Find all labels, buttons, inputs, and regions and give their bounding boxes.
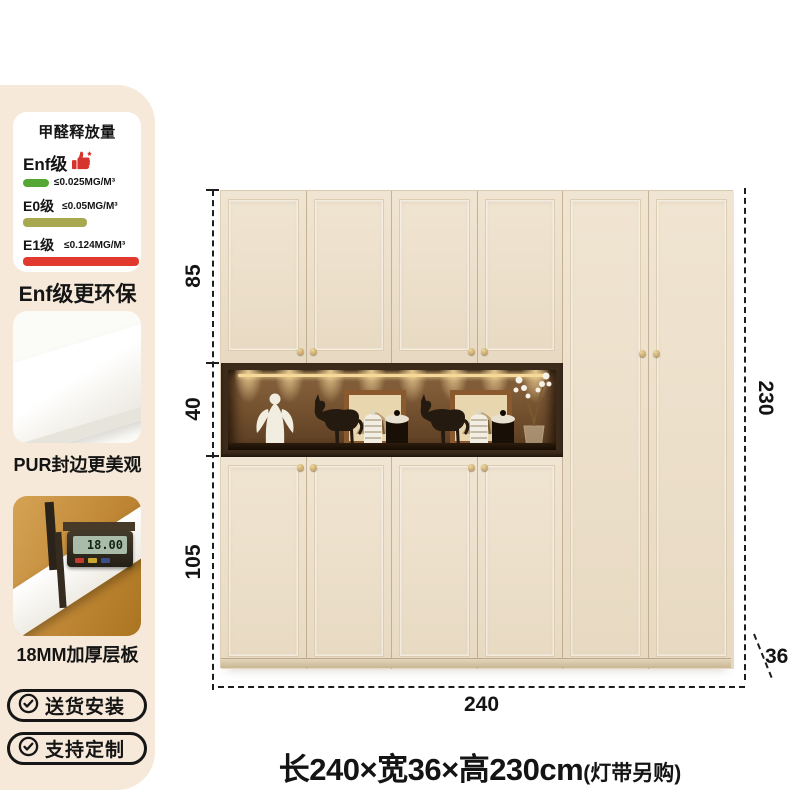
delivery-install-badge: 送货安装 [7, 689, 147, 722]
dim-tick [206, 362, 219, 364]
cabinet-door [221, 457, 307, 669]
eco-note: Enf级更环保 [0, 278, 155, 308]
door-knob [297, 348, 304, 355]
dim-label-upper-height: 85 [174, 256, 214, 296]
thick-shelf-label: 18MM加厚层板 [0, 641, 155, 667]
cabinet-door [478, 191, 563, 363]
dim-line-width [218, 686, 745, 688]
badge-label: 支持定制 [45, 735, 125, 762]
custom-support-badge: 支持定制 [7, 732, 147, 765]
grade-bar-line-e1 [23, 257, 131, 266]
door-knob [310, 348, 317, 355]
dim-tick [206, 189, 219, 191]
door-knob [481, 464, 488, 471]
dim-tick [206, 455, 219, 457]
caliper-rail [63, 522, 135, 531]
door-knob [297, 464, 304, 471]
grade-value-enf: ≤0.025MG/M³ [54, 177, 115, 188]
size-caption-note: (灯带另购) [583, 762, 681, 785]
grade-bar-e1 [23, 257, 139, 266]
display-niche [221, 363, 563, 457]
product-detail-page: 甲醛释放量 Enf级 ≤0.025MG/M³ E0级 ≤0.05MG/M³ [0, 0, 800, 800]
cabinet-tall-door [563, 191, 649, 669]
pur-edge-label: PUR封边更美观 [0, 451, 155, 477]
niche-decor-items [228, 370, 556, 450]
thumbs-up-star-icon [71, 151, 93, 171]
grade-bar-enf [23, 179, 49, 187]
door-knob [481, 348, 488, 355]
grade-row-e1: E1级 ≤0.124MG/M³ [23, 235, 131, 255]
board-corner-graphic [13, 318, 141, 443]
angel-statue [256, 394, 293, 447]
grade-bar-e0 [23, 218, 87, 227]
niche-shelf [228, 443, 556, 450]
caliper-image: 18.00 [13, 496, 141, 636]
door-knob [653, 350, 660, 357]
check-circle-icon [18, 693, 39, 719]
grade-label-e1: E1级 [23, 235, 54, 255]
caliper-lcd: 18.00 [73, 536, 127, 554]
cabinet-door [221, 191, 307, 363]
cabinet-tall-door [649, 191, 734, 669]
grade-value-e0: ≤0.05MG/M³ [62, 201, 118, 212]
grade-row-enf: Enf级 [23, 150, 131, 175]
cabinet-image [220, 190, 733, 668]
formaldehyde-panel-title: 甲醛释放量 [23, 121, 131, 142]
door-knob [468, 464, 475, 471]
badge-label: 送货安装 [45, 692, 125, 719]
niche-interior [228, 370, 556, 450]
door-knob [310, 464, 317, 471]
cabinet-door [392, 191, 478, 363]
feature-sidebar: 甲醛释放量 Enf级 ≤0.025MG/M³ E0级 ≤0.05MG/M³ [0, 85, 155, 790]
grade-bar-line-enf: ≤0.025MG/M³ [23, 177, 131, 188]
flower-vase [514, 373, 552, 449]
cabinet-door [307, 457, 392, 669]
cabinet-base [221, 658, 731, 668]
caliper-buttons [75, 558, 110, 563]
cabinet-door [392, 457, 478, 669]
grade-row-e0: E0级 ≤0.05MG/M³ [23, 196, 131, 216]
door-knob [468, 348, 475, 355]
cabinet-door [478, 457, 563, 669]
check-circle-icon [18, 736, 39, 762]
caliper-body: 18.00 [67, 531, 133, 567]
dim-label-depth: 36 [765, 645, 788, 669]
pur-edge-image [13, 311, 141, 443]
grade-value-e1: ≤0.124MG/M³ [64, 240, 125, 251]
dim-label-width: 240 [218, 693, 745, 717]
grade-label-e0: E0级 [23, 196, 54, 216]
grade-label-enf: Enf级 [23, 150, 67, 175]
grade-bar-line-e0 [23, 218, 131, 227]
dim-label-lower-height: 105 [174, 542, 214, 582]
door-knob [639, 350, 646, 357]
dim-label-total-height: 230 [745, 378, 785, 418]
formaldehyde-panel: 甲醛释放量 Enf级 ≤0.025MG/M³ E0级 ≤0.05MG/M³ [13, 112, 141, 272]
dim-line-right [744, 188, 746, 680]
size-caption: 长240×宽36×高230cm(灯带另购) [200, 744, 760, 789]
cabinet-door [307, 191, 392, 363]
dim-label-niche-height: 40 [174, 389, 214, 429]
size-caption-main: 长240×宽36×高230cm [279, 752, 583, 787]
